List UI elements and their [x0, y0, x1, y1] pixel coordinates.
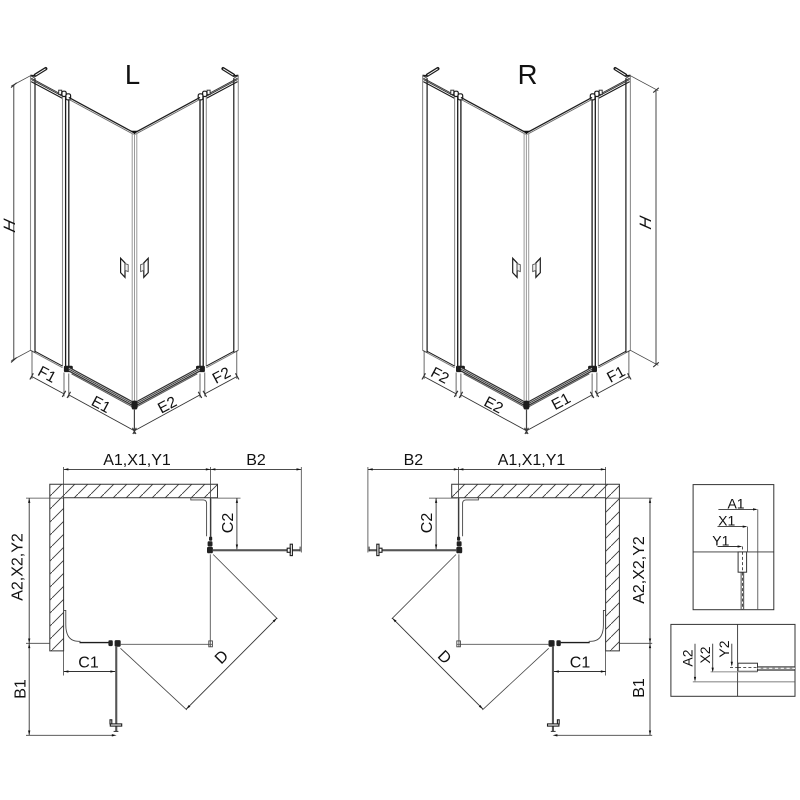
- svg-text:X2: X2: [697, 646, 713, 663]
- svg-text:B2: B2: [246, 452, 266, 469]
- svg-text:A1,X1,Y1: A1,X1,Y1: [498, 452, 566, 469]
- svg-text:Y2: Y2: [716, 640, 732, 657]
- svg-text:X1: X1: [718, 513, 735, 529]
- svg-text:A1: A1: [727, 495, 744, 511]
- svg-text:C2: C2: [419, 513, 436, 534]
- svg-text:R: R: [518, 59, 538, 90]
- svg-text:B2: B2: [404, 452, 424, 469]
- svg-text:C1: C1: [570, 654, 591, 671]
- svg-text:A2,X2,Y2: A2,X2,Y2: [631, 536, 648, 604]
- svg-text:Y1: Y1: [712, 533, 729, 549]
- svg-text:B1: B1: [631, 678, 648, 698]
- svg-text:C1: C1: [78, 654, 99, 671]
- svg-text:L: L: [125, 59, 140, 90]
- svg-text:A2: A2: [679, 649, 695, 666]
- svg-text:C2: C2: [220, 513, 237, 534]
- svg-text:A2,X2,Y2: A2,X2,Y2: [9, 533, 26, 601]
- svg-text:B1: B1: [13, 679, 30, 699]
- svg-text:A1,X1,Y1: A1,X1,Y1: [103, 452, 171, 469]
